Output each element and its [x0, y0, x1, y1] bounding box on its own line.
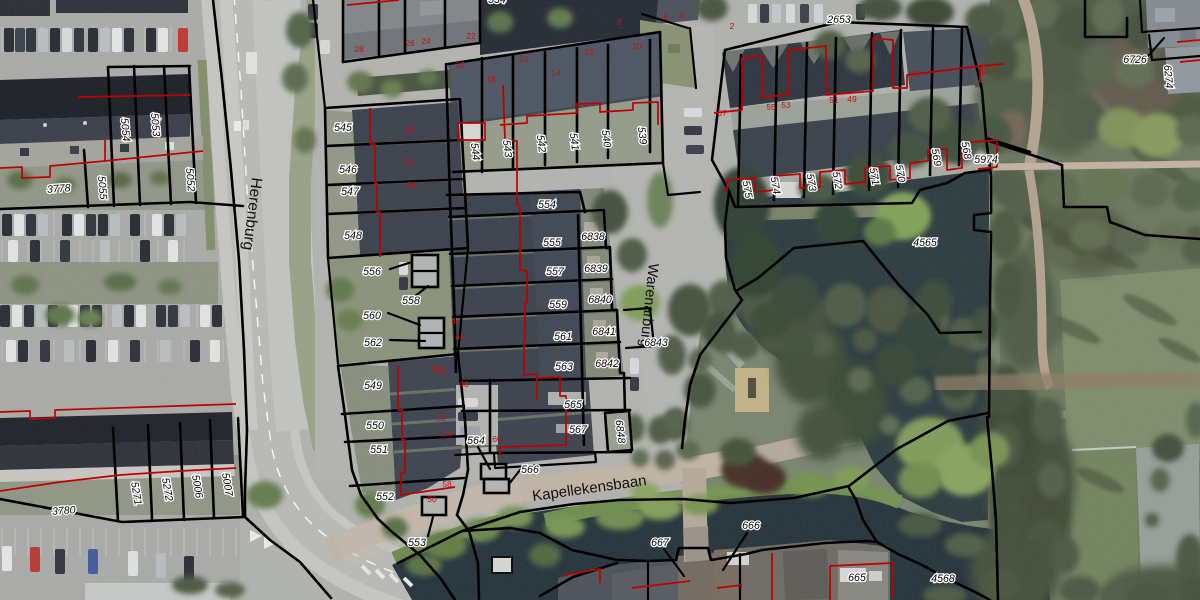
svg-text:60: 60 — [492, 434, 502, 444]
svg-text:44: 44 — [451, 316, 461, 326]
svg-text:16: 16 — [519, 54, 529, 64]
svg-text:49: 49 — [847, 94, 857, 104]
svg-text:6726: 6726 — [1123, 54, 1147, 66]
svg-text:4565: 4565 — [913, 237, 937, 249]
svg-text:3778: 3778 — [47, 182, 71, 196]
svg-text:53: 53 — [781, 100, 791, 110]
svg-text:6841: 6841 — [592, 326, 616, 338]
svg-text:559: 559 — [549, 299, 567, 311]
svg-text:562: 562 — [364, 337, 382, 349]
svg-text:2653: 2653 — [826, 14, 851, 26]
svg-text:6839: 6839 — [584, 263, 608, 275]
svg-text:8: 8 — [617, 17, 622, 27]
svg-text:566: 566 — [521, 464, 539, 476]
svg-text:10: 10 — [632, 41, 642, 51]
svg-text:553: 553 — [408, 537, 426, 549]
svg-text:540: 540 — [599, 129, 613, 148]
svg-text:18: 18 — [486, 74, 496, 84]
svg-text:52: 52 — [436, 413, 446, 423]
svg-text:4568: 4568 — [931, 573, 955, 585]
svg-text:6840: 6840 — [588, 294, 612, 306]
svg-text:543: 543 — [500, 139, 514, 158]
svg-text:667: 667 — [651, 537, 670, 549]
svg-text:67: 67 — [717, 108, 727, 118]
svg-text:51: 51 — [829, 95, 839, 105]
svg-text:557: 557 — [546, 266, 565, 278]
svg-text:554: 554 — [538, 199, 556, 211]
svg-text:56: 56 — [431, 364, 441, 374]
svg-text:542: 542 — [534, 134, 548, 153]
svg-text:14: 14 — [551, 68, 561, 78]
svg-text:24: 24 — [421, 36, 431, 46]
svg-text:555: 555 — [543, 237, 561, 249]
svg-text:34: 34 — [406, 180, 416, 190]
svg-text:5054: 5054 — [118, 117, 132, 142]
svg-text:54: 54 — [442, 429, 452, 439]
svg-text:3780: 3780 — [52, 504, 76, 518]
svg-text:5055: 5055 — [95, 175, 109, 200]
svg-text:6842: 6842 — [595, 358, 619, 370]
svg-text:539: 539 — [635, 126, 649, 145]
svg-text:558: 558 — [402, 295, 420, 307]
svg-text:564: 564 — [467, 435, 485, 447]
svg-text:547: 547 — [341, 186, 360, 198]
svg-text:2: 2 — [730, 21, 735, 31]
svg-text:43: 43 — [979, 66, 989, 76]
svg-text:58: 58 — [442, 479, 452, 489]
svg-text:5053: 5053 — [148, 112, 162, 137]
svg-text:561: 561 — [554, 331, 572, 343]
svg-text:534: 534 — [488, 0, 506, 6]
svg-text:563: 563 — [555, 361, 573, 373]
svg-text:560: 560 — [363, 310, 381, 322]
svg-text:32: 32 — [405, 157, 415, 167]
svg-text:12: 12 — [584, 47, 594, 57]
svg-text:549: 549 — [364, 380, 382, 392]
svg-text:22: 22 — [466, 31, 476, 41]
svg-text:36: 36 — [404, 125, 414, 135]
svg-text:4: 4 — [680, 10, 685, 20]
svg-text:565: 565 — [564, 399, 582, 411]
svg-text:50: 50 — [427, 494, 437, 504]
svg-text:550: 550 — [366, 420, 384, 432]
svg-text:548: 548 — [344, 230, 362, 242]
svg-text:48: 48 — [459, 379, 469, 389]
svg-text:556: 556 — [363, 266, 381, 278]
svg-text:28: 28 — [354, 44, 364, 54]
svg-text:45: 45 — [911, 69, 921, 79]
svg-text:545: 545 — [334, 122, 352, 134]
svg-text:665: 665 — [848, 572, 866, 584]
svg-text:5052: 5052 — [183, 167, 197, 192]
svg-text:551: 551 — [370, 444, 388, 456]
svg-text:544: 544 — [468, 142, 482, 161]
svg-text:20: 20 — [455, 60, 465, 70]
svg-text:541: 541 — [567, 132, 581, 151]
svg-text:552: 552 — [376, 491, 394, 503]
svg-text:6: 6 — [664, 12, 669, 22]
svg-text:666: 666 — [742, 520, 760, 532]
svg-text:567: 567 — [569, 424, 588, 436]
svg-text:6843: 6843 — [644, 337, 668, 349]
svg-text:5974: 5974 — [974, 154, 998, 166]
svg-text:6838: 6838 — [581, 231, 605, 243]
svg-text:26: 26 — [405, 38, 415, 48]
svg-text:46: 46 — [455, 332, 465, 342]
svg-text:6274: 6274 — [1161, 64, 1175, 89]
svg-text:546: 546 — [339, 164, 357, 176]
svg-text:55: 55 — [766, 102, 776, 112]
